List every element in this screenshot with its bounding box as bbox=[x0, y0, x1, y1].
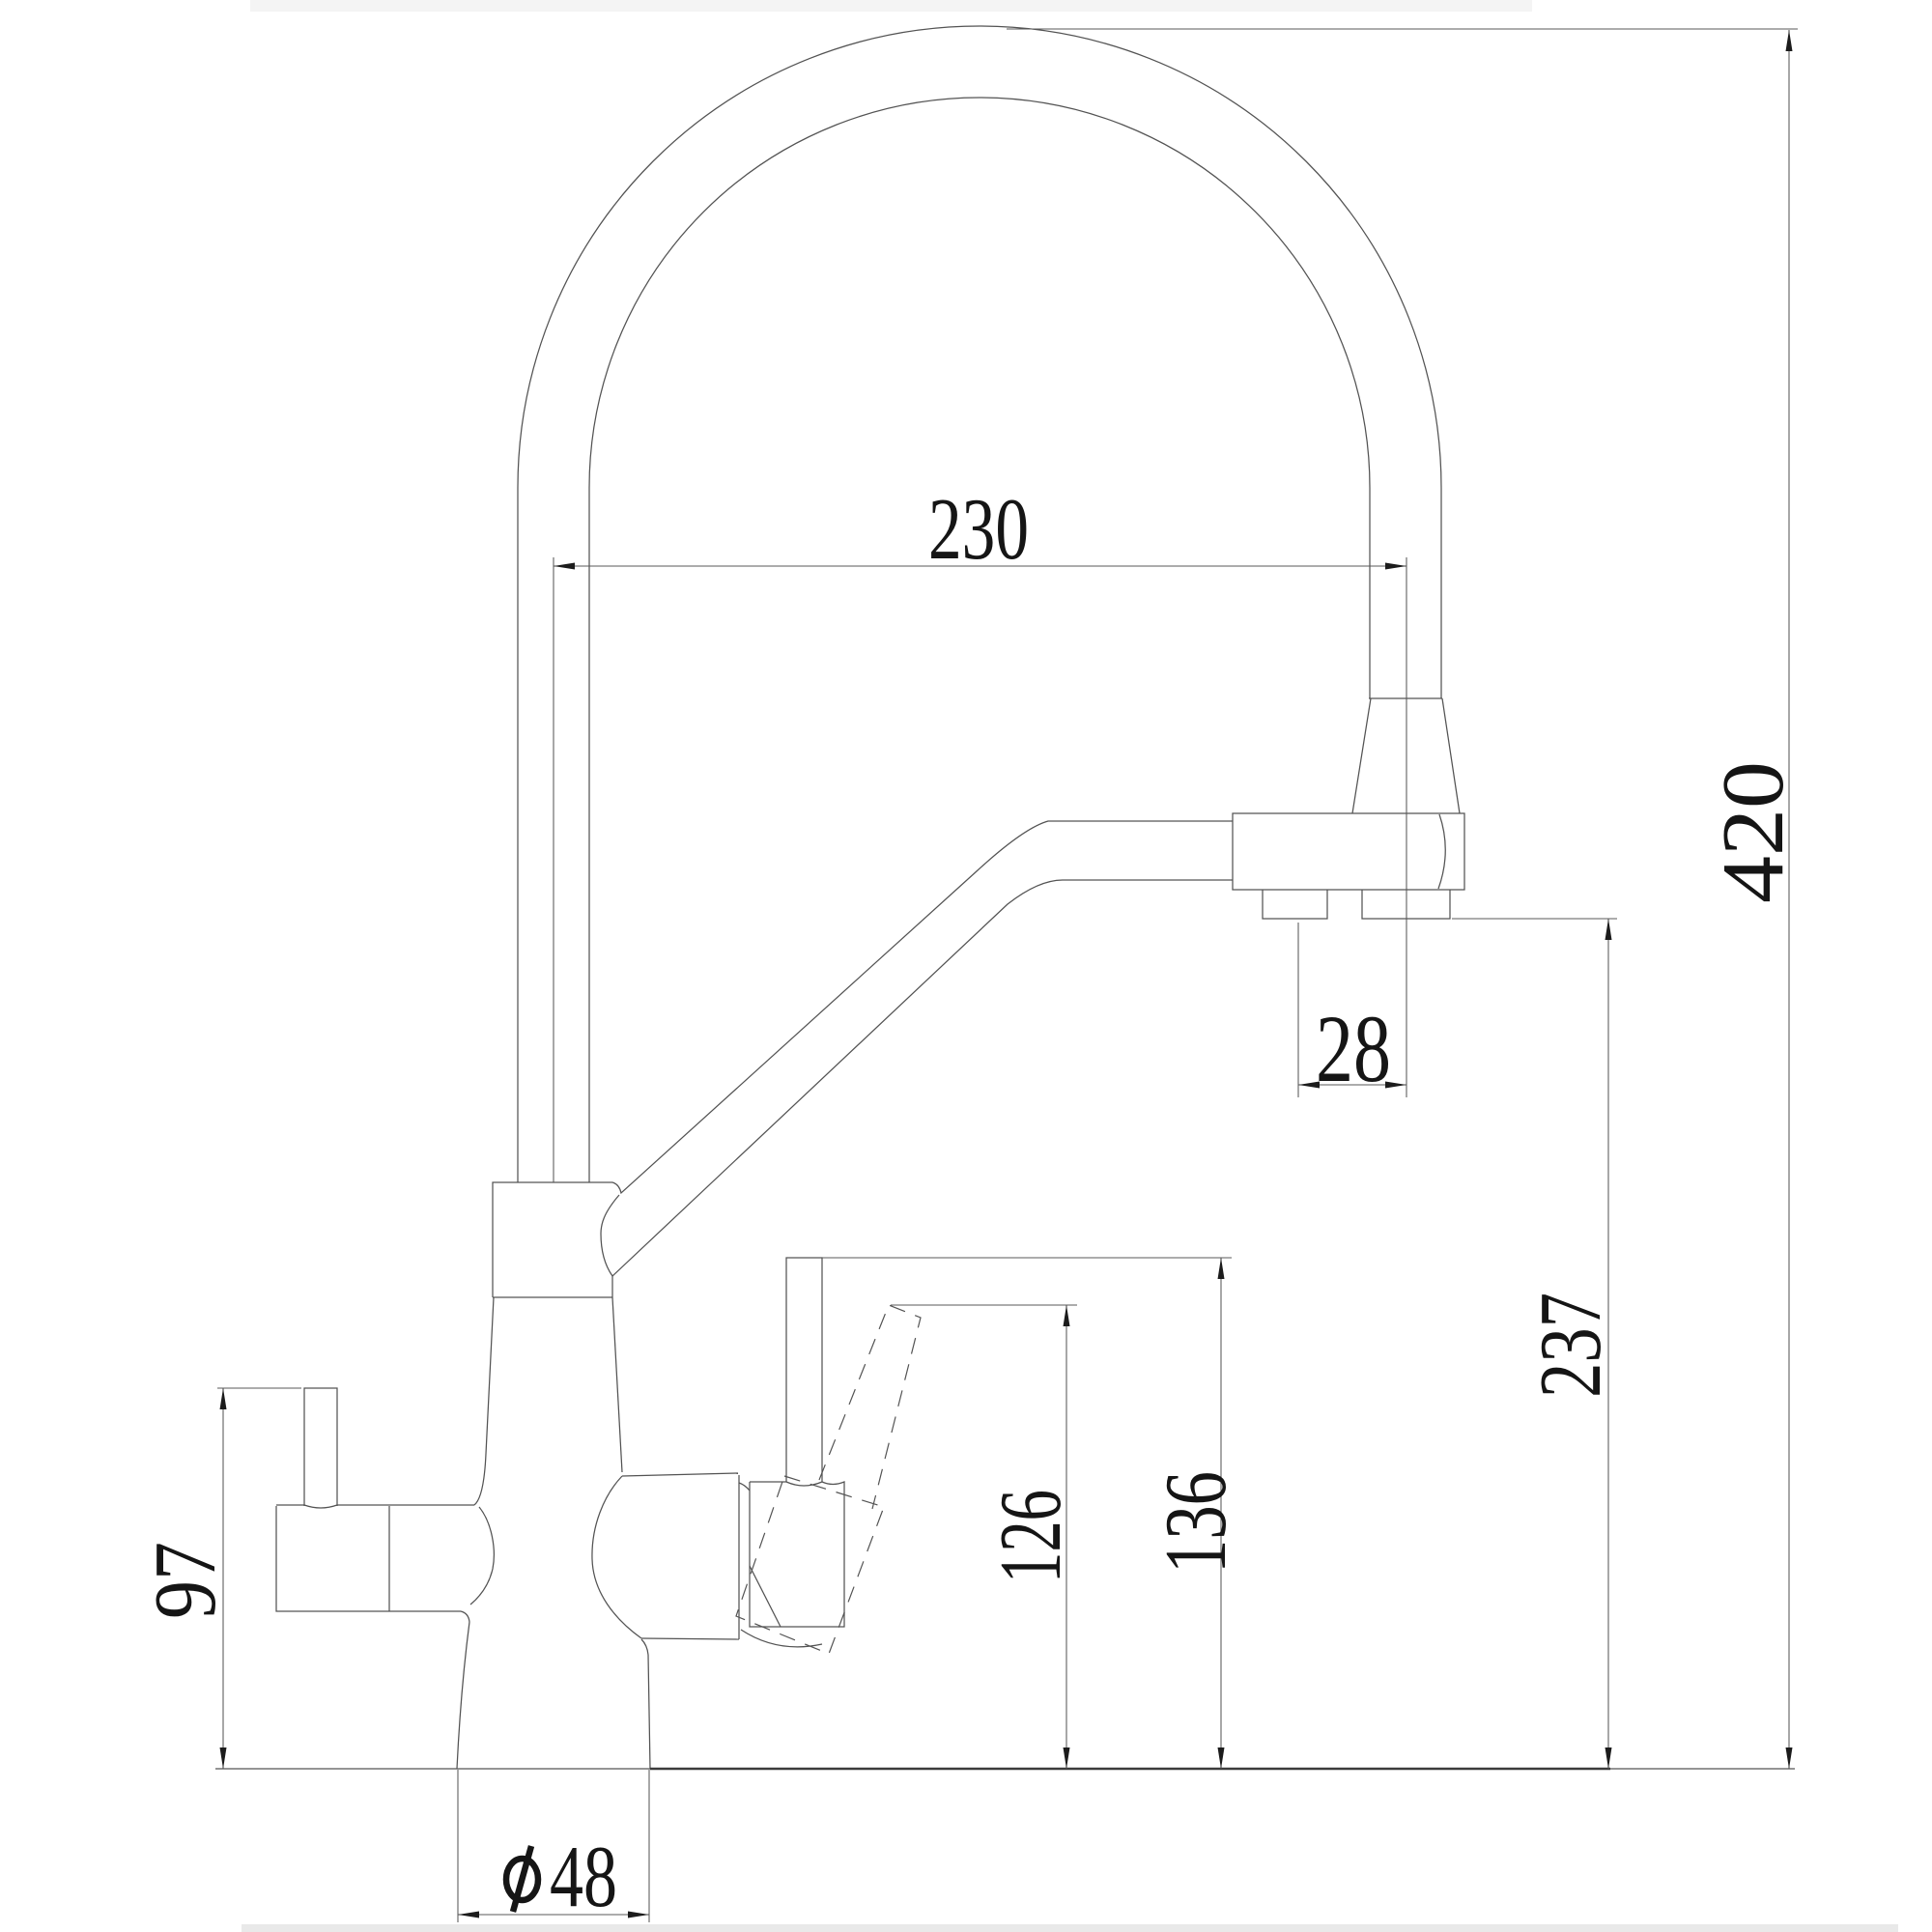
svg-text:420: 420 bbox=[1704, 761, 1802, 903]
svg-text:97: 97 bbox=[136, 1542, 234, 1619]
svg-text:28: 28 bbox=[1316, 995, 1391, 1102]
svg-text:126: 126 bbox=[981, 1490, 1079, 1583]
svg-text:230: 230 bbox=[928, 480, 1029, 578]
svg-text:48: 48 bbox=[550, 1828, 617, 1925]
svg-text:237: 237 bbox=[1521, 1293, 1619, 1398]
svg-text:136: 136 bbox=[1147, 1471, 1244, 1574]
